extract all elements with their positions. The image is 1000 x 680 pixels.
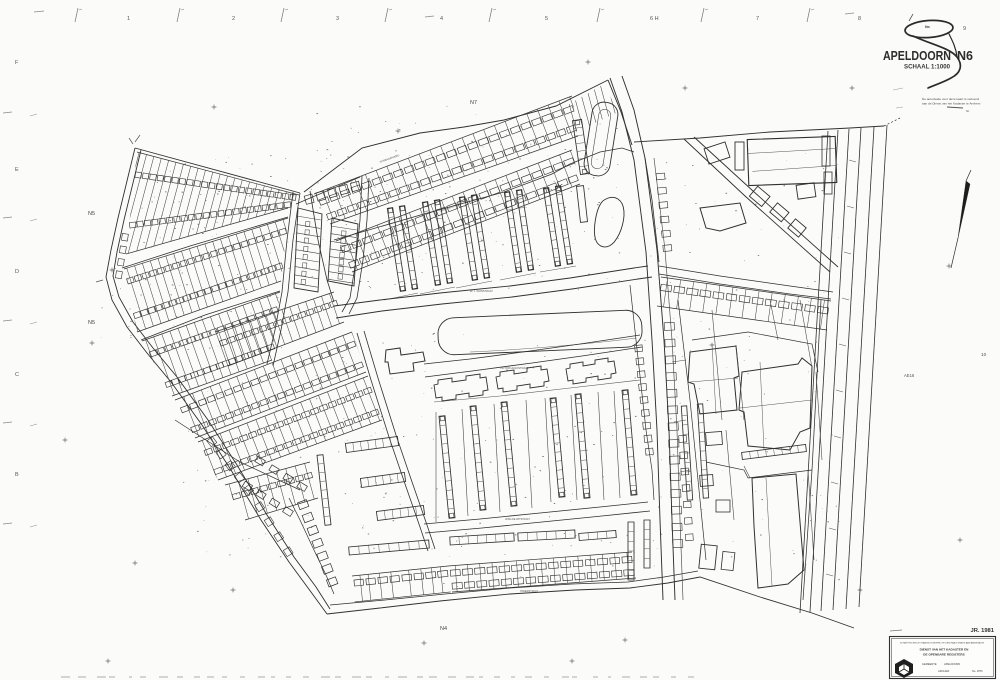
svg-text:B: B [15, 472, 19, 478]
svg-text:5: 5 [545, 16, 548, 22]
svg-text:8: 8 [858, 16, 861, 22]
svg-text:W. J. WIJNSTRAAT: W. J. WIJNSTRAAT [470, 289, 493, 293]
svg-text:10: 10 [981, 352, 987, 358]
svg-text:6m: 6m [925, 25, 930, 29]
svg-text:AE16: AE16 [904, 373, 915, 378]
svg-text:E: E [15, 167, 19, 173]
svg-text:7: 7 [756, 16, 759, 22]
svg-text:HAMERSTRAAT: HAMERSTRAAT [520, 590, 538, 593]
svg-text:N7: N7 [470, 100, 477, 106]
svg-text:3: 3 [336, 16, 339, 22]
svg-text:N4: N4 [440, 626, 447, 632]
svg-text:4: 4 [440, 16, 443, 22]
svg-text:ARCHIEF: ARCHIEF [938, 669, 950, 673]
svg-text:D: D [15, 269, 19, 275]
svg-text:St.: St. [966, 109, 970, 113]
svg-text:aan de Dienst van het Kadaster: aan de Dienst van het Kadaster te Arnhem [922, 102, 981, 106]
svg-text:GEMEENTE: GEMEENTE [922, 662, 937, 666]
svg-text:De autorisatie voor deze kaart: De autorisatie voor deze kaart is verlee… [922, 97, 979, 101]
svg-text:9: 9 [963, 26, 966, 32]
svg-text:2: 2 [232, 16, 235, 22]
svg-text:APELDOORN: APELDOORN [944, 662, 960, 666]
svg-text:1: 1 [127, 16, 130, 22]
svg-text:SCHATTING EN DE STAATSUITGE: SCHATTING EN DE STAATSUITGEVERIJ TE DEN … [900, 642, 985, 645]
svg-text:N5: N5 [88, 320, 95, 326]
svg-text:No. 1876: No. 1876 [972, 669, 983, 673]
svg-text:C: C [15, 372, 19, 378]
svg-text:6 H: 6 H [650, 16, 659, 22]
svg-text:ANNA DE WITSTRAAT: ANNA DE WITSTRAAT [505, 518, 530, 521]
svg-text:DE OPENBARE REGISTERS: DE OPENBARE REGISTERS [923, 653, 964, 657]
svg-text:APELDOORN: APELDOORN [883, 48, 951, 63]
svg-text:DIENST VAN HET KADASTER EN: DIENST VAN HET KADASTER EN [920, 648, 970, 652]
svg-text:JR. 1981: JR. 1981 [970, 628, 994, 634]
svg-text:SCHAAL 1:1000: SCHAAL 1:1000 [904, 65, 951, 71]
svg-text:VICTOR HUGOSTRAAT: VICTOR HUGOSTRAAT [500, 366, 529, 370]
svg-text:N5: N5 [88, 211, 95, 217]
